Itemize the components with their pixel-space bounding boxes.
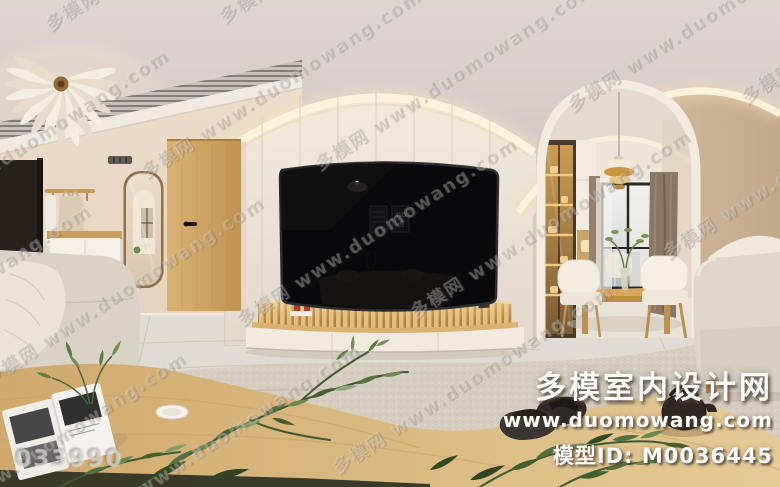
plate bbox=[156, 405, 188, 419]
glass-cabinet bbox=[541, 140, 576, 338]
photo-id: 033990 bbox=[15, 446, 123, 472]
interior-door bbox=[167, 140, 246, 311]
brand-name: 多模室内设计网 bbox=[503, 372, 773, 405]
poster-text-line1: no bbox=[396, 210, 406, 219]
model-id: 模型ID: M0036445 bbox=[503, 440, 773, 470]
dining-room bbox=[541, 84, 696, 345]
brand-block: 多模室内设计网 www.duomowang.com 模型ID: M0036445 bbox=[503, 372, 773, 470]
brand-url: www.duomowang.com bbox=[503, 408, 773, 432]
wall-vent bbox=[108, 156, 132, 164]
tote-bag bbox=[58, 196, 84, 233]
poster-text-line2: el bbox=[397, 220, 404, 229]
panorama-image: no el bbox=[0, 0, 780, 487]
tv-screen: no el bbox=[280, 160, 498, 311]
